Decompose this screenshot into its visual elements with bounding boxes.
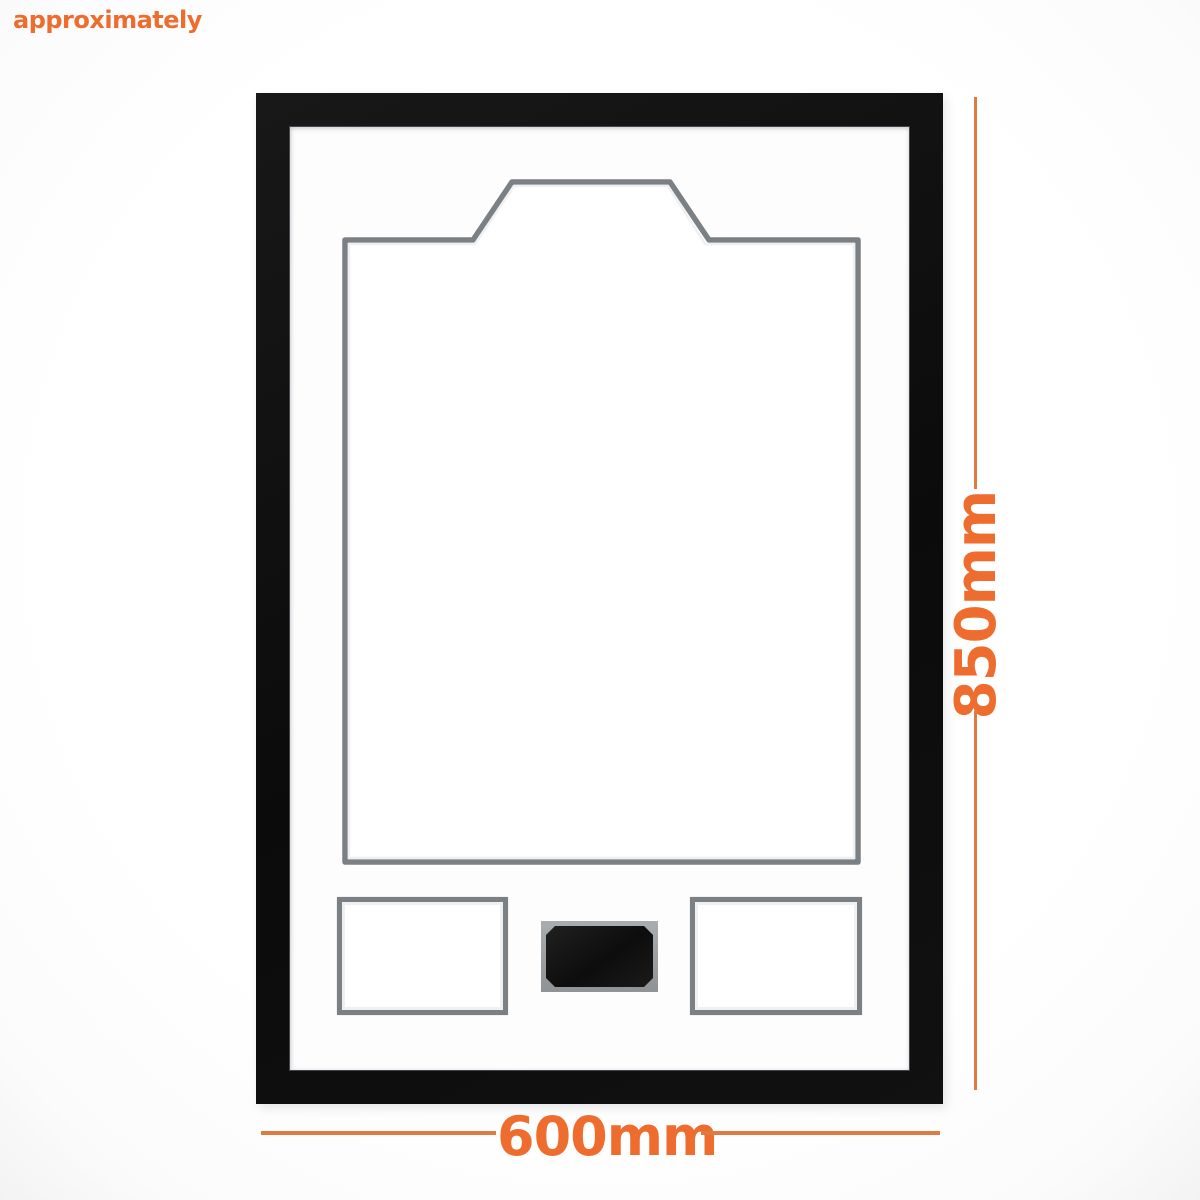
height-dimension-line-top	[974, 97, 977, 489]
shirt-cutout-outline	[345, 182, 858, 862]
width-dimension-line-right	[701, 1131, 940, 1135]
product-image: approximately 850mm 600mm	[0, 0, 1200, 1200]
plaque-plate	[541, 921, 658, 992]
display-frame	[256, 93, 943, 1104]
width-dimension-line-left	[261, 1131, 496, 1135]
height-dimension-line-bottom	[974, 711, 977, 1090]
right-photo-aperture	[690, 897, 862, 1015]
engraving-plaque	[546, 926, 653, 987]
approximately-label: approximately	[13, 6, 202, 34]
left-photo-aperture	[337, 897, 508, 1015]
mat-board	[290, 127, 909, 1070]
height-dimension-label: 850mm	[947, 455, 1007, 755]
width-dimension-label: 600mm	[497, 1108, 697, 1166]
